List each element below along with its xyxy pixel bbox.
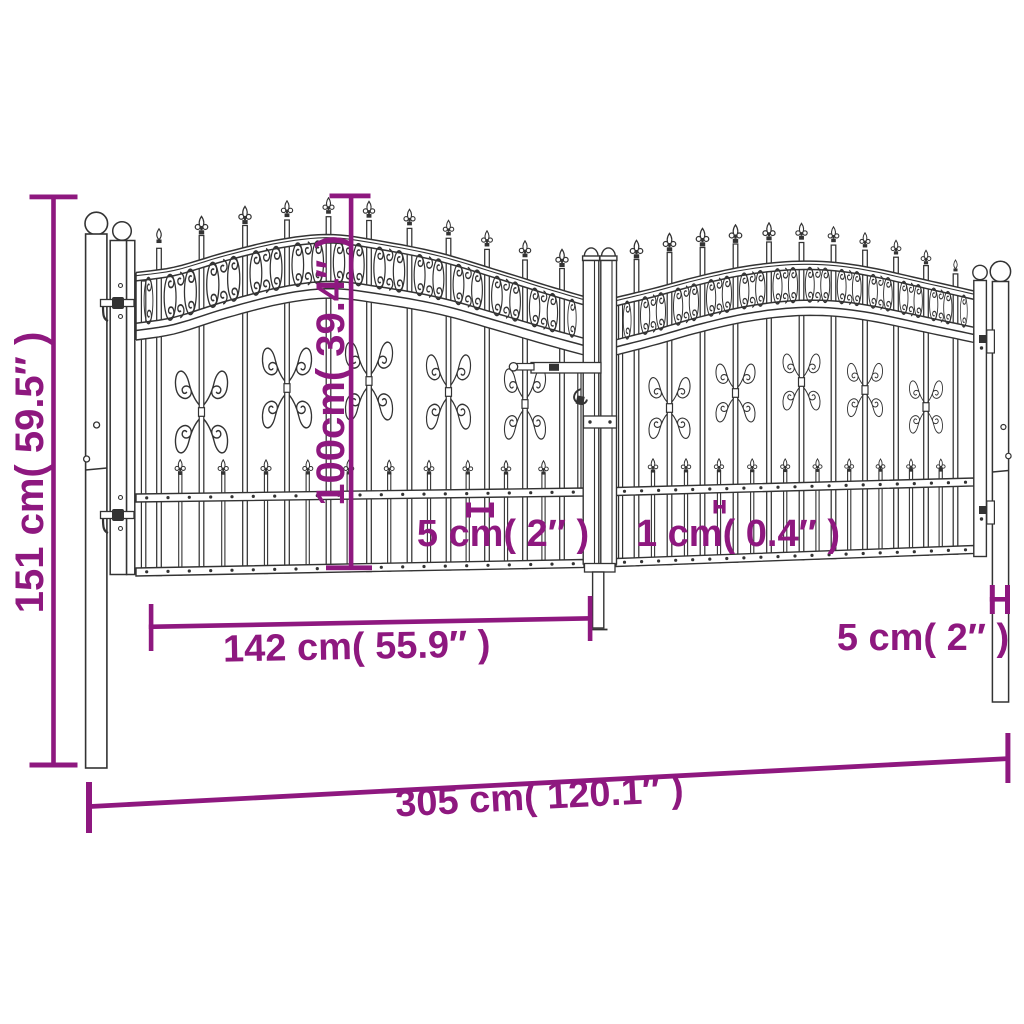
svg-text:305 cm( 120.1″ ): 305 cm( 120.1″ ) [394, 768, 684, 825]
svg-text:5 cm( 2″ ): 5 cm( 2″ ) [417, 513, 589, 555]
svg-text:142 cm( 55.9″ ): 142 cm( 55.9″ ) [223, 623, 491, 670]
svg-text:151 cm( 59.5″ ): 151 cm( 59.5″ ) [8, 332, 52, 614]
svg-text:100cm( 39.4″ ): 100cm( 39.4″ ) [309, 235, 353, 505]
svg-text:5 cm( 2″ ): 5 cm( 2″ ) [837, 617, 1009, 659]
svg-text:1 cm( 0.4″ ): 1 cm( 0.4″ ) [636, 513, 840, 555]
